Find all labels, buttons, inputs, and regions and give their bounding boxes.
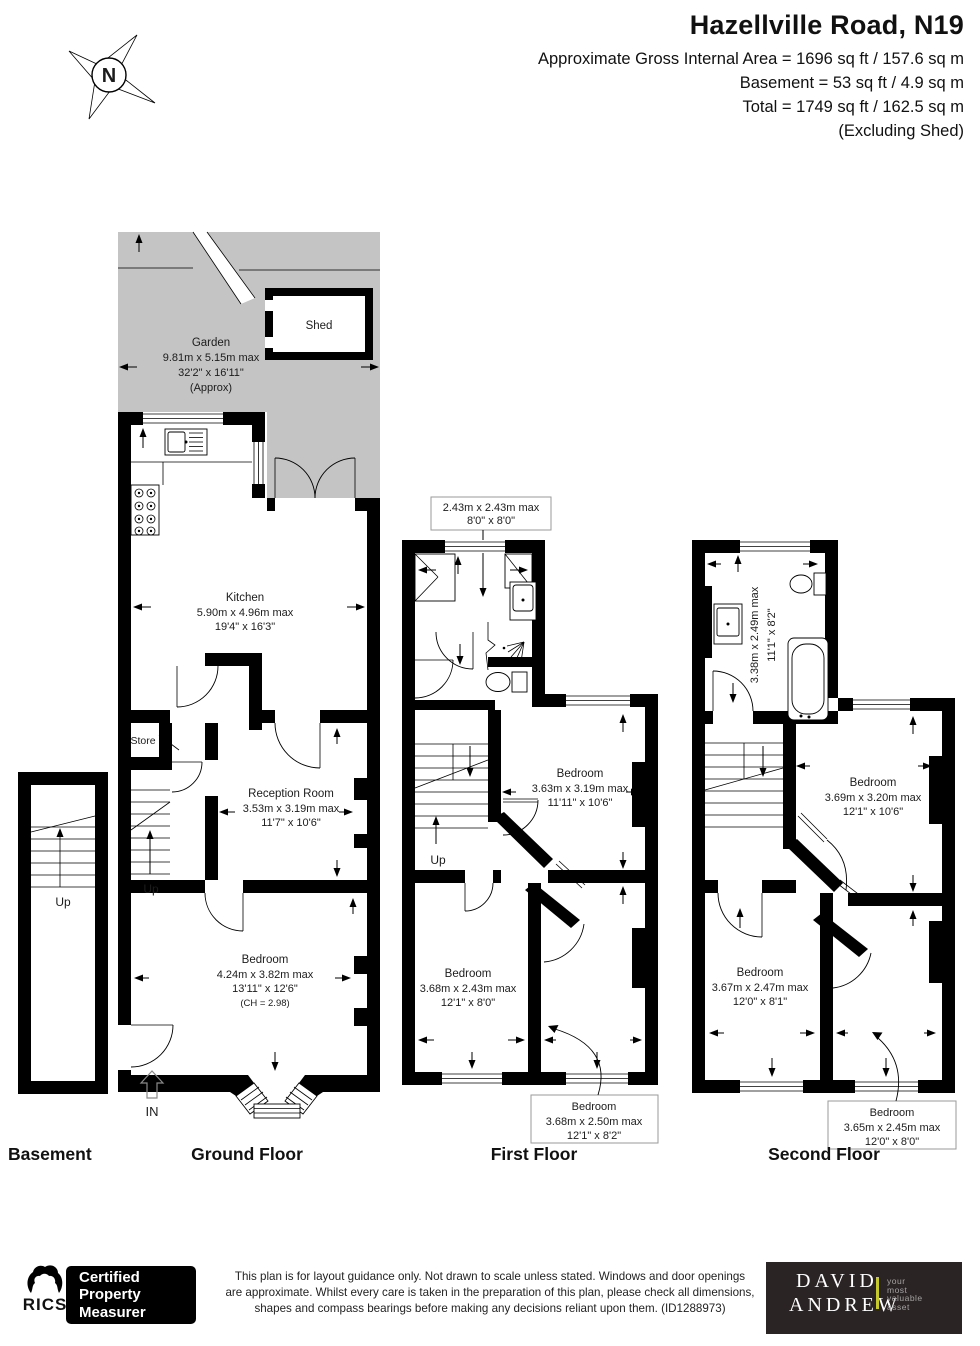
first-bedroom2-dims-ft: 12'1" x 8'0": [441, 997, 495, 1009]
agent-name-line-1: DAVID: [796, 1270, 878, 1293]
disclaimer-line-2: are approximate. Whilst every care is ta…: [200, 1285, 780, 1301]
shed: Shed: [265, 288, 373, 360]
first-top-callout-dims-m: 2.43m x 2.43m max: [443, 502, 540, 514]
garden-dims-m: 9.81m x 5.15m max: [163, 352, 260, 364]
area-line-3: Total = 1749 sq ft / 162.5 sq m: [380, 95, 964, 119]
first-bottom-callout-dims-ft: 12'1" x 8'2": [567, 1130, 621, 1142]
kitchen-sink: [165, 429, 207, 455]
kitchen-dims-ft: 19'4" x 16'3": [215, 621, 275, 633]
reception-dims-m: 3.53m x 3.19m max: [243, 803, 340, 815]
entrance: IN: [131, 1025, 173, 1119]
reception-room: Reception Room 3.53m x 3.19m max 11'7" x…: [219, 723, 353, 877]
david-andrew-logo: DAVID ANDREW your most valuable asset: [766, 1262, 962, 1334]
compass-n-label: N: [102, 65, 116, 87]
area-line-2: Basement = 53 sq ft / 4.9 sq m: [380, 71, 964, 95]
floorplan-page: N Hazellville Road, N19 Approximate Gros…: [0, 0, 980, 1346]
first-stairs: Up: [415, 744, 488, 867]
shed-label: Shed: [306, 320, 333, 332]
page-title: Hazellville Road, N19: [380, 10, 964, 41]
kitchen-label: Kitchen: [226, 592, 264, 604]
first-floor-label: First Floor: [469, 1144, 599, 1165]
second-floor-plan: 3.38m x 2.49m max 11'1" x 8'2": [688, 528, 968, 1173]
ground-floor-label: Ground Floor: [182, 1144, 312, 1165]
first-bedroom1-dims-m: 3.63m x 3.19m max: [532, 783, 629, 795]
first-bathroom: [415, 554, 536, 670]
second-bathroom: 3.38m x 2.49m max 11'1" x 8'2": [707, 555, 828, 720]
agent-tagline: your most valuable asset: [887, 1277, 923, 1311]
second-bottom-callout-dims-m: 3.65m x 2.45m max: [844, 1122, 941, 1134]
store-label: Store: [130, 735, 155, 747]
second-bedroom1-label: Bedroom: [850, 777, 897, 789]
cpm-line-2: Property: [79, 1286, 196, 1304]
second-bedroom2-dims-ft: 12'0" x 8'1": [733, 996, 787, 1008]
ground-up-label: Up: [143, 882, 159, 896]
garden-area: Garden 9.81m x 5.15m max 32'2" x 16'11" …: [118, 232, 380, 498]
reception-dims-ft: 11'7" x 10'6": [261, 817, 321, 829]
bay-window: [230, 1075, 323, 1118]
second-bedroom1-dims-m: 3.69m x 3.20m max: [825, 792, 922, 804]
kitchen-stove: [131, 462, 252, 535]
ground-bedroom-dims-ft: 13'11" x 12'6": [232, 983, 298, 995]
agent-tag-4: asset: [887, 1303, 923, 1312]
ground-bedroom: Bedroom 4.24m x 3.82m max 13'11" x 12'6"…: [134, 893, 357, 1071]
first-bedroom1-dims-ft: 11'11" x 10'6": [548, 797, 613, 809]
ground-bedroom-note: (CH = 2.98): [240, 998, 289, 1009]
agent-accent-bar: [876, 1277, 879, 1309]
header-title-block: Hazellville Road, N19 Approximate Gross …: [380, 10, 964, 143]
first-bedroom1-label: Bedroom: [557, 768, 604, 780]
second-bath-dims-m: 3.38m x 2.49m max: [749, 586, 761, 683]
second-bath-dims-ft: 11'1" x 8'2": [766, 608, 778, 661]
disclaimer-line-1: This plan is for layout guidance only. N…: [200, 1269, 780, 1285]
ground-bedroom-label: Bedroom: [242, 954, 289, 966]
rics-lion-icon: [21, 1263, 69, 1295]
second-bedroom2-dims-m: 3.67m x 2.47m max: [712, 982, 809, 994]
agent-name-line-2: ANDREW: [789, 1294, 901, 1317]
second-stairs: [705, 743, 783, 827]
ground-bedroom-dims-m: 4.24m x 3.82m max: [217, 969, 314, 981]
cpm-line-1: Certified: [79, 1269, 196, 1287]
first-bedroom2-dims-m: 3.68m x 2.43m max: [420, 983, 517, 995]
certified-property-measurer-badge: Certified Property Measurer: [66, 1266, 196, 1324]
second-floor-label: Second Floor: [759, 1144, 889, 1165]
second-bedroom1-dims-ft: 12'1" x 10'6": [843, 806, 903, 818]
second-bottom-callout-label: Bedroom: [870, 1107, 915, 1119]
basement-plan: Up: [18, 772, 108, 1094]
cpm-line-3: Measurer: [79, 1304, 196, 1322]
first-floor-plan: 2.43m x 2.43m max 8'0" x 8'0": [398, 492, 666, 1147]
disclaimer-text: This plan is for layout guidance only. N…: [200, 1269, 780, 1317]
first-bottom-callout-dims-m: 3.68m x 2.50m max: [546, 1116, 643, 1128]
second-bedroom2-label: Bedroom: [737, 967, 784, 979]
area-line-1: Approximate Gross Internal Area = 1696 s…: [380, 47, 964, 71]
first-bottom-callout-label: Bedroom: [572, 1101, 617, 1113]
first-bedroom2-label: Bedroom: [445, 968, 492, 980]
compass-north-icon: N: [53, 15, 168, 130]
basement-up-label: Up: [55, 895, 71, 909]
ground-floor-plan: Garden 9.81m x 5.15m max 32'2" x 16'11" …: [115, 230, 383, 1130]
reception-label: Reception Room: [248, 788, 334, 800]
entrance-in-label: IN: [146, 1104, 159, 1119]
second-bedroom2: Bedroom 3.67m x 2.47m max 12'0" x 8'1": [709, 967, 815, 1077]
basement-floor-label: Basement: [8, 1144, 92, 1165]
kitchen-dims-m: 5.90m x 4.96m max: [197, 607, 294, 619]
area-line-4: (Excluding Shed): [380, 119, 964, 143]
second-room3-arrows: [836, 1030, 936, 1078]
first-bedroom2: Bedroom 3.68m x 2.43m max 12'1" x 8'0": [418, 968, 525, 1069]
first-top-callout-dims-ft: 8'0" x 8'0": [467, 515, 515, 527]
garden-label: Garden: [192, 337, 230, 349]
garden-note: (Approx): [190, 382, 232, 394]
first-up-label: Up: [430, 853, 446, 867]
garden-dims-ft: 32'2" x 16'11": [178, 367, 244, 379]
disclaimer-line-3: shapes and compass bearings before makin…: [200, 1301, 780, 1317]
